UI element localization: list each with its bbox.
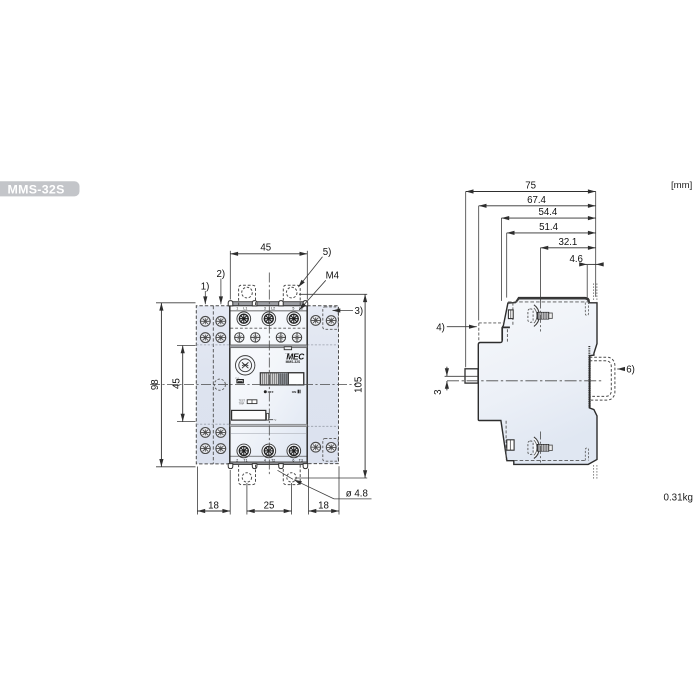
- svg-text:5: 5: [292, 307, 294, 311]
- svg-text:67.4: 67.4: [527, 195, 546, 206]
- svg-text:T3: T3: [299, 459, 303, 463]
- svg-text:L2: L2: [271, 307, 275, 311]
- svg-text:T2: T2: [271, 459, 275, 463]
- svg-text:1): 1): [201, 282, 210, 293]
- svg-text:TRIP: TRIP: [239, 402, 245, 405]
- svg-text:T1: T1: [243, 459, 247, 463]
- svg-text:3: 3: [264, 307, 266, 311]
- svg-text:5): 5): [323, 247, 332, 258]
- svg-text:6: 6: [292, 459, 294, 463]
- svg-text:2: 2: [236, 459, 238, 463]
- svg-text:45: 45: [260, 242, 271, 253]
- svg-text:L1: L1: [243, 307, 247, 311]
- svg-text:OFF: OFF: [268, 390, 274, 394]
- svg-text:3): 3): [355, 306, 364, 317]
- svg-text:ø 4.8: ø 4.8: [346, 488, 368, 499]
- svg-text:0.31kg: 0.31kg: [664, 493, 693, 504]
- svg-text:3: 3: [433, 390, 444, 395]
- svg-text:1: 1: [236, 307, 238, 311]
- svg-text:98: 98: [150, 379, 161, 390]
- svg-text:54.4: 54.4: [538, 207, 557, 218]
- svg-text:~: ~: [274, 418, 277, 423]
- svg-text:LSIS: LSIS: [285, 353, 290, 355]
- svg-text:18: 18: [208, 500, 219, 511]
- svg-text:4): 4): [436, 322, 445, 333]
- svg-text:[mm]: [mm]: [671, 180, 692, 191]
- svg-text:51.4: 51.4: [539, 222, 558, 233]
- svg-text:MMS-32S: MMS-32S: [286, 360, 301, 364]
- svg-text:ON: ON: [292, 390, 297, 394]
- svg-text:25: 25: [264, 500, 275, 511]
- svg-text:4.6: 4.6: [569, 254, 582, 265]
- svg-text:M4: M4: [326, 271, 340, 282]
- svg-text:18: 18: [318, 500, 329, 511]
- svg-text:45: 45: [171, 378, 182, 389]
- svg-text:4: 4: [264, 459, 266, 463]
- svg-text:MMS-32S: MMS-32S: [8, 182, 65, 196]
- svg-text:2): 2): [217, 269, 226, 280]
- svg-text:32.1: 32.1: [558, 237, 577, 248]
- svg-text:6): 6): [626, 365, 635, 376]
- svg-text:75: 75: [525, 181, 536, 192]
- svg-text:105: 105: [354, 377, 365, 393]
